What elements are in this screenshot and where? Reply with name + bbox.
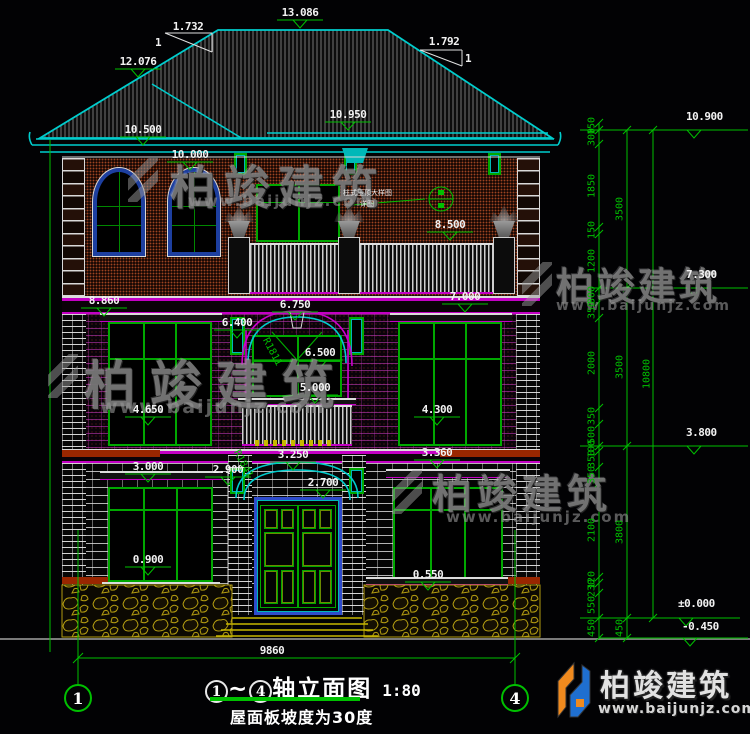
- brand-url: www.baijunjz.com: [598, 701, 750, 717]
- axis-bubble-4: 4: [501, 684, 529, 712]
- right-dimension-chain: [580, 123, 748, 638]
- balcony-pedestal-3: [493, 237, 515, 294]
- roof-hip-line: [152, 84, 243, 139]
- dimension-label: 350: [587, 301, 598, 319]
- dimension-label: 150: [587, 221, 598, 239]
- brand-block: 柏竣建筑 www.baijunjz.com: [552, 655, 596, 727]
- window-2f-left: [108, 322, 212, 446]
- level-label: -0.450: [682, 620, 719, 633]
- red-band-right-top: [440, 450, 540, 457]
- dimension-label: 10800: [642, 359, 653, 389]
- dimension-label: 300: [587, 128, 598, 146]
- door-leaf-right: [298, 505, 336, 608]
- arched-window-left: [93, 168, 145, 256]
- level-label: 7.300: [686, 268, 717, 281]
- ground-line: [0, 638, 750, 640]
- dimension-label: 1200: [587, 249, 598, 273]
- foundation-right: [364, 585, 540, 637]
- hip-roof: [40, 30, 552, 138]
- slope-value-left: 1.732: [173, 20, 204, 33]
- foundation-left: [62, 585, 232, 637]
- pier-left-1f: [62, 463, 86, 588]
- dimension-label: 450: [615, 619, 626, 637]
- slit-2f-right: [349, 317, 364, 355]
- level-label: ±0.000: [678, 597, 715, 610]
- title-underline: [210, 697, 360, 701]
- callout-text-line2: 详图: [360, 199, 374, 209]
- window-2f-right: [398, 322, 502, 446]
- entrance-steps: [216, 618, 378, 636]
- brand-name: 柏竣建筑: [600, 661, 732, 705]
- watermark-text: 柏竣建筑: [556, 256, 720, 311]
- pier-left-2f: [62, 314, 86, 449]
- sill-1f-right: [366, 577, 508, 585]
- dimension-label: 120: [587, 571, 598, 589]
- elevation-label: 10.950: [330, 108, 367, 121]
- quoin-left: [62, 158, 85, 296]
- pier-right-2f: [516, 314, 540, 449]
- elevation-label: 12.076: [120, 55, 157, 68]
- elevation-label: 10.500: [125, 123, 162, 136]
- dentil-row: [255, 440, 331, 446]
- title-scale: 1:80: [382, 681, 421, 700]
- dimension-label: 300: [587, 286, 598, 304]
- window-head-2f-left: [100, 313, 222, 322]
- cornice-band-third: [62, 296, 540, 314]
- slit-2f-left: [230, 317, 245, 355]
- arched-window-right: [168, 168, 220, 256]
- slit-1f-left: [230, 468, 245, 494]
- dimension-label: 150: [587, 117, 598, 135]
- dimension-label: 450: [587, 619, 598, 637]
- window-1f-left: [108, 487, 213, 582]
- slope-value-right: 1.792: [429, 35, 460, 48]
- watermark-url: www.baijunjz.com: [556, 298, 731, 314]
- level-label: 10.900: [686, 110, 723, 123]
- balcony-pedestal-2: [338, 237, 360, 294]
- dimension-label: 350: [587, 407, 598, 425]
- slope-one-left: 1: [155, 36, 161, 49]
- callout-text-line1: 柱式压顶大样图: [343, 188, 392, 198]
- door-leaf-left: [260, 505, 298, 608]
- dimension-label: 100: [587, 440, 598, 458]
- bottom-span-dimension: 9860: [260, 644, 285, 657]
- dimension-label: 2000: [587, 351, 598, 375]
- balcony-pedestal-1: [228, 237, 250, 294]
- balcony-french-door: [256, 184, 340, 242]
- dimension-label: 230: [587, 579, 598, 597]
- pier-right-1f: [516, 463, 540, 588]
- dimension-label: 3500: [615, 197, 626, 221]
- slit-1f-right: [349, 468, 364, 494]
- window-1f-right: [393, 487, 503, 582]
- roof-slope-note: 屋面板坡度为30度: [230, 704, 373, 728]
- arch-window-2f-center: [252, 335, 342, 397]
- window-head-1f-right: [386, 469, 510, 478]
- entrance-double-door: [254, 497, 342, 615]
- sill-1f-left: [102, 582, 220, 590]
- balustrade-3f-right: [360, 243, 493, 294]
- dimension-label: 3800: [615, 520, 626, 544]
- dimension-label: 500: [587, 426, 598, 444]
- quoin-right: [517, 158, 540, 296]
- dimension-label: 2100: [587, 518, 598, 542]
- balcony-2f-slab: [238, 398, 356, 405]
- dimension-label: 3500: [615, 355, 626, 379]
- eaves: [29, 132, 560, 152]
- window-head-2f-right: [390, 313, 512, 322]
- red-band-left-top: [62, 450, 160, 457]
- slope-triangle-left: [165, 33, 212, 52]
- dimension-label: 350: [587, 466, 598, 484]
- window-head-1f-left: [100, 471, 222, 480]
- axis-number-1: 1: [72, 689, 83, 708]
- elevation-label: 13.086: [282, 6, 319, 19]
- slope-one-right: 1: [465, 52, 471, 65]
- axis-bubble-1: 1: [64, 684, 92, 712]
- cad-elevation-drawing: 13.08612.07610.95010.50010.0008.5008.860…: [0, 0, 750, 734]
- frieze-vent-3: [488, 153, 501, 175]
- frieze-vent-1: [234, 153, 247, 175]
- slope-triangle-right: [420, 50, 462, 66]
- dimension-label: 550: [587, 596, 598, 614]
- balustrade-3f-left: [250, 243, 338, 294]
- dimension-label: 350: [587, 450, 598, 468]
- level-label: 3.800: [686, 426, 717, 439]
- axis-number-4: 4: [509, 689, 520, 708]
- brand-logo-icon: [552, 655, 596, 723]
- dimension-label: 1850: [587, 174, 598, 198]
- frieze-vent-2: [344, 153, 357, 175]
